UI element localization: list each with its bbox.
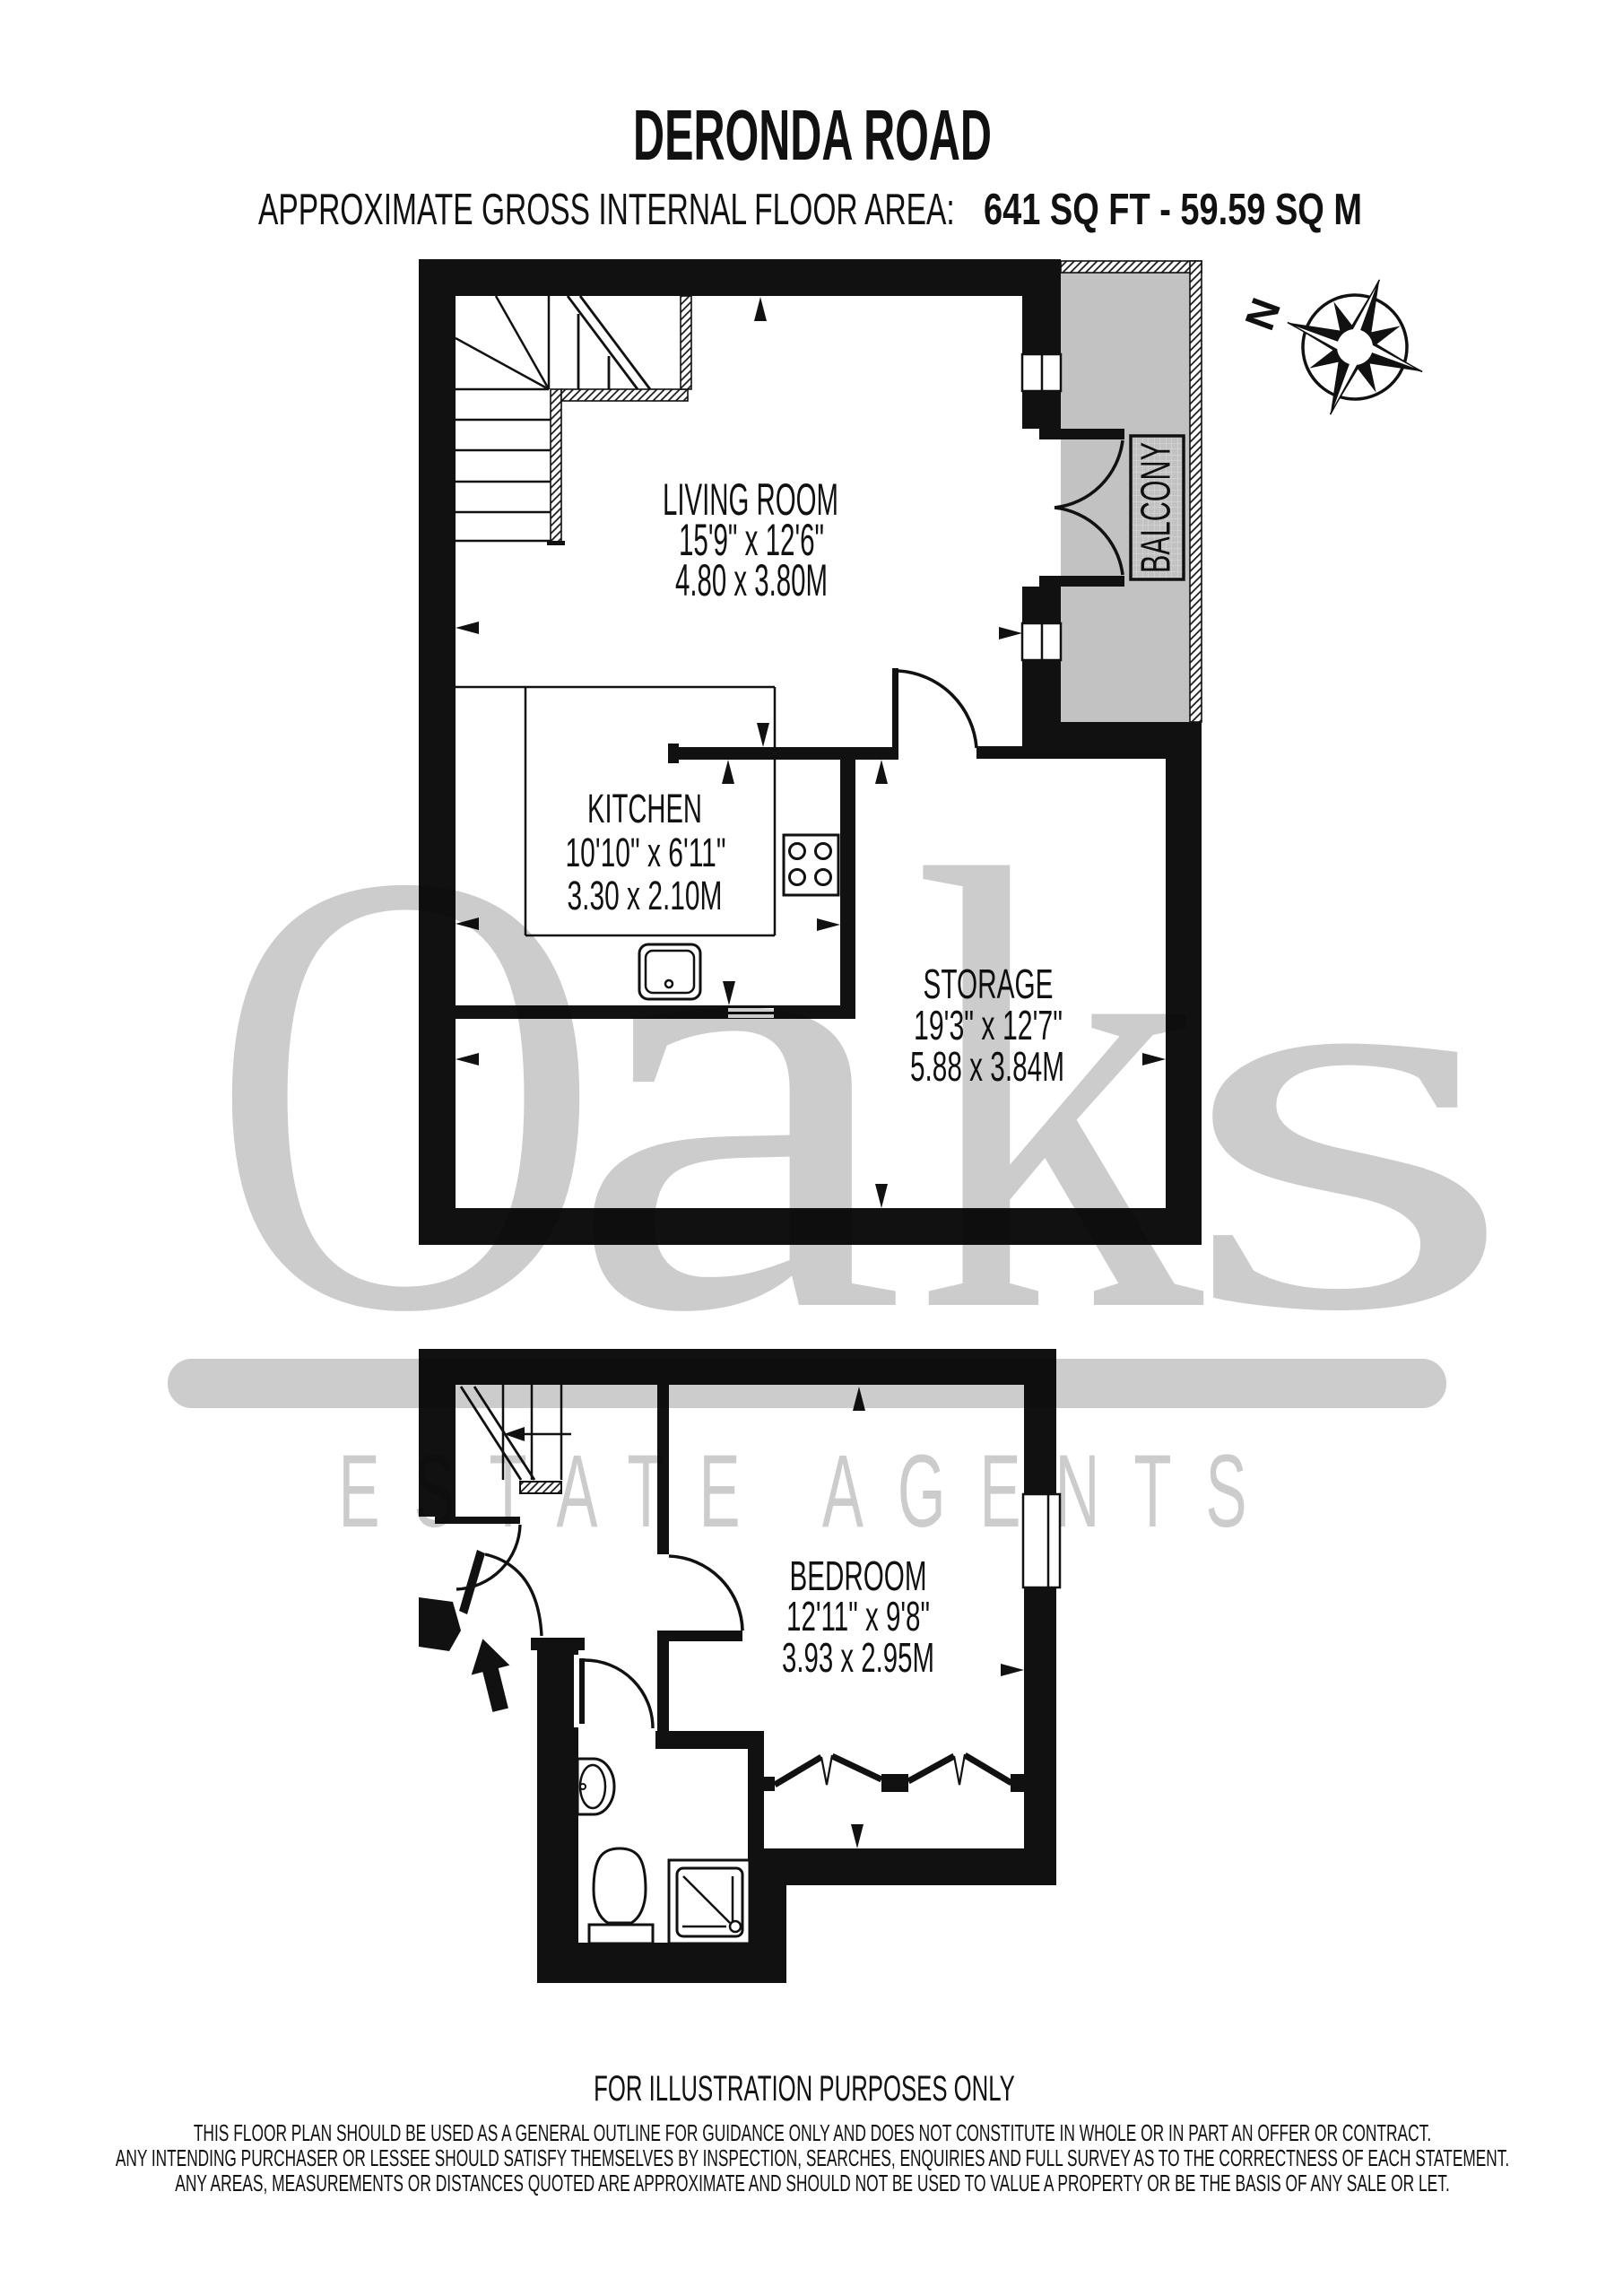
svg-text:ESTATE AGENTS: ESTATE AGENTS [339, 1434, 1281, 1550]
svg-text:k: k [912, 740, 1203, 1442]
svg-text:O: O [210, 742, 602, 1443]
svg-text:s: s [1176, 811, 1518, 1425]
svg-text:a: a [566, 740, 906, 1442]
